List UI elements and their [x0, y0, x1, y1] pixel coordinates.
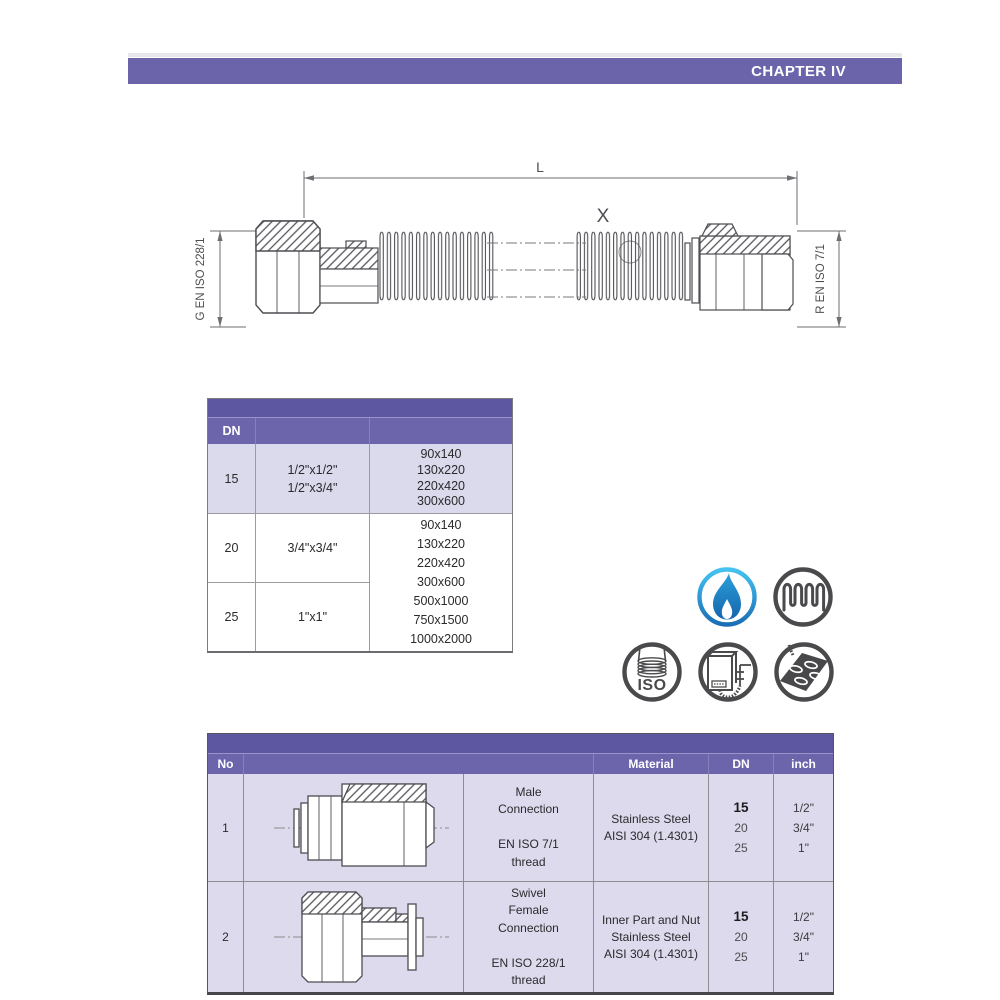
dimension-left-lines — [210, 231, 256, 327]
arrowhead-down — [217, 317, 222, 327]
detail-x-label: X — [597, 206, 610, 227]
parts-table: No Material DN inch 1 — [207, 733, 834, 995]
iso-label: ISO — [637, 677, 666, 694]
iso-hose-icon: ISO — [621, 641, 683, 703]
break-lines — [487, 243, 586, 297]
size-table: DN 15 1/2"x1/2" 1/2"x3/4" 90x140 130x220… — [207, 398, 513, 653]
size-table-header-dn: DN — [208, 418, 256, 444]
gas-flame-icon — [696, 566, 758, 628]
size-row-dn-25: 25 — [208, 583, 256, 651]
parts-header-image — [244, 754, 594, 774]
size-row-dn-15: 15 — [208, 444, 256, 514]
parts-header-material: Material — [594, 754, 709, 774]
dn-rest: 20 25 — [734, 927, 747, 967]
parts-header-inch: inch — [774, 754, 833, 774]
gas-boiler-icon — [697, 641, 759, 703]
size-row-25-sizes: 1"x1" — [256, 583, 370, 651]
arrowhead-up — [836, 231, 841, 241]
size-row-15-sizes: 1/2"x1/2" 1/2"x3/4" — [256, 444, 370, 514]
size-rows-20-25-dims: 90x140 130x220 220x420 300x600 500x1000 … — [370, 514, 512, 651]
parts-header-dn: DN — [709, 754, 774, 774]
part-row-1-dn: 15 20 25 — [709, 774, 774, 882]
chapter-bar: CHAPTER IV — [128, 58, 902, 84]
corrugated-hose-left — [378, 229, 496, 303]
size-table-header-row: DN — [208, 417, 512, 444]
size-table-header-dims — [370, 418, 512, 444]
part-row-2-description: Swivel Female Connection EN ISO 228/1 th… — [464, 882, 594, 992]
part-row-2-dn: 15 20 25 — [709, 882, 774, 992]
arrowhead-right — [787, 175, 797, 180]
parts-table-header-row: No Material DN inch — [208, 753, 833, 774]
chapter-title: CHAPTER IV — [751, 63, 902, 80]
part-row-1-inch: 1/2" 3/4" 1" — [774, 774, 833, 882]
part-row-2-material: Inner Part and Nut Stainless Steel AISI … — [594, 882, 709, 992]
catalog-page: { "page": { "chapter_title": "CHAPTER IV… — [0, 0, 1000, 1000]
size-row-15-dims: 90x140 130x220 220x420 300x600 — [370, 444, 512, 514]
parts-table-top-band — [208, 734, 833, 753]
part-row-2-no: 2 — [208, 882, 244, 992]
corrugated-hose-icon — [772, 566, 834, 628]
size-row-20-sizes: 3/4"x3/4" — [256, 514, 370, 583]
part-row-2-inch: 1/2" 3/4" 1" — [774, 882, 833, 992]
part-row-1-description: Male Connection EN ISO 7/1 thread — [464, 774, 594, 882]
part-row-2-drawing — [244, 882, 464, 992]
size-table-header-size — [256, 418, 370, 444]
left-swivel-nut — [256, 221, 320, 313]
dn-primary: 15 — [733, 907, 748, 927]
left-thread-label: G EN ISO 228/1 — [195, 237, 207, 320]
dn-rest: 20 25 — [734, 818, 747, 858]
dn-primary: 15 — [733, 798, 748, 818]
parts-header-no: No — [208, 754, 244, 774]
page-top-strip — [128, 53, 902, 57]
size-row-dn-20: 20 — [208, 514, 256, 583]
right-male-fitting — [685, 224, 793, 310]
corrugated-hose-right — [574, 229, 684, 303]
left-collar — [320, 241, 378, 303]
dimension-L-lines — [304, 171, 797, 225]
arrowhead-left — [304, 175, 314, 180]
part-row-1-drawing — [244, 774, 464, 882]
gas-cooktop-icon — [773, 641, 835, 703]
arrowhead-down — [836, 317, 841, 327]
part-row-1-material: Stainless Steel AISI 304 (1.4301) — [594, 774, 709, 882]
male-connection-drawing — [244, 775, 464, 881]
hose-technical-drawing: L X G EN ISO 228/1 R EN ISO 7/1 — [185, 152, 855, 344]
part-row-1-no: 1 — [208, 774, 244, 882]
size-table-top-band — [208, 399, 512, 417]
right-thread-label: R EN ISO 7/1 — [815, 244, 827, 314]
swivel-female-connection-drawing — [244, 884, 464, 990]
arrowhead-up — [217, 231, 222, 241]
dimension-L-label: L — [536, 159, 544, 175]
